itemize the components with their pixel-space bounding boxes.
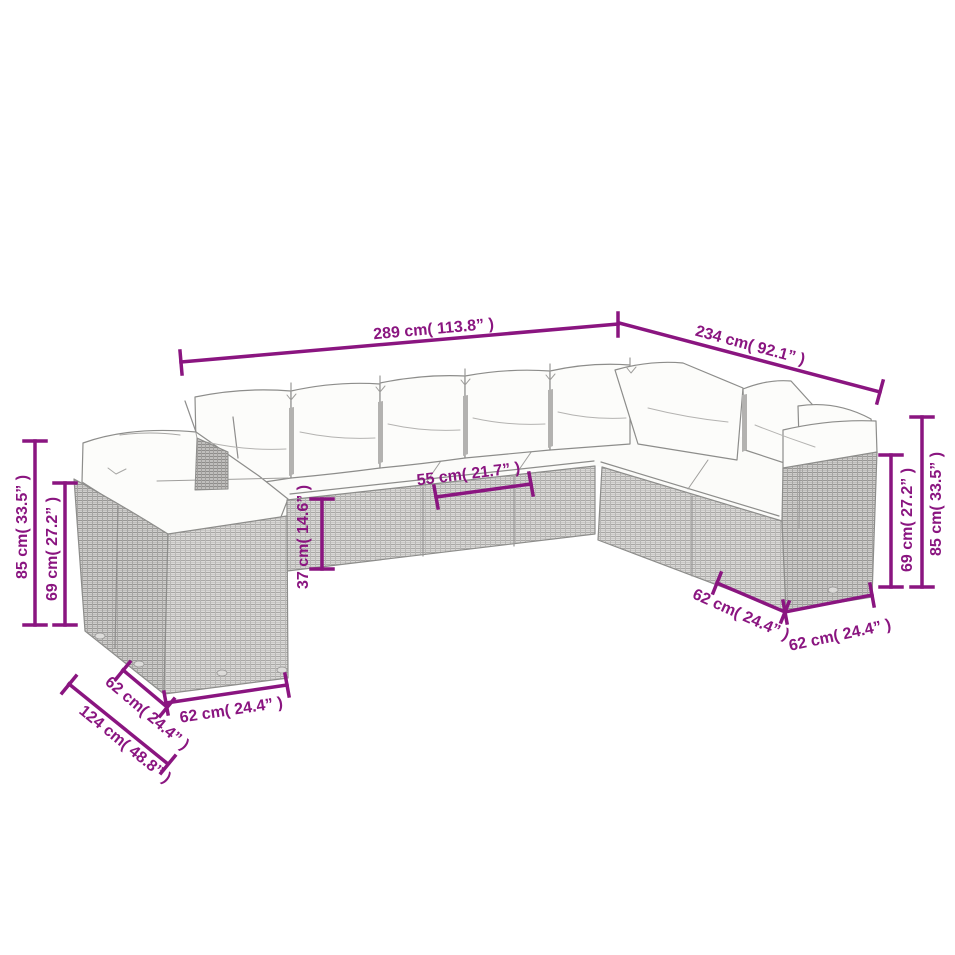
svg-text:85 cm( 33.5” ): 85 cm( 33.5” ) bbox=[928, 452, 945, 556]
svg-text:85 cm( 33.5” ): 85 cm( 33.5” ) bbox=[14, 475, 31, 579]
svg-text:37 cm( 14.6” ): 37 cm( 14.6” ) bbox=[295, 485, 312, 589]
svg-text:69 cm( 27.2” ): 69 cm( 27.2” ) bbox=[44, 497, 61, 601]
svg-text:69 cm( 27.2” ): 69 cm( 27.2” ) bbox=[899, 468, 916, 572]
